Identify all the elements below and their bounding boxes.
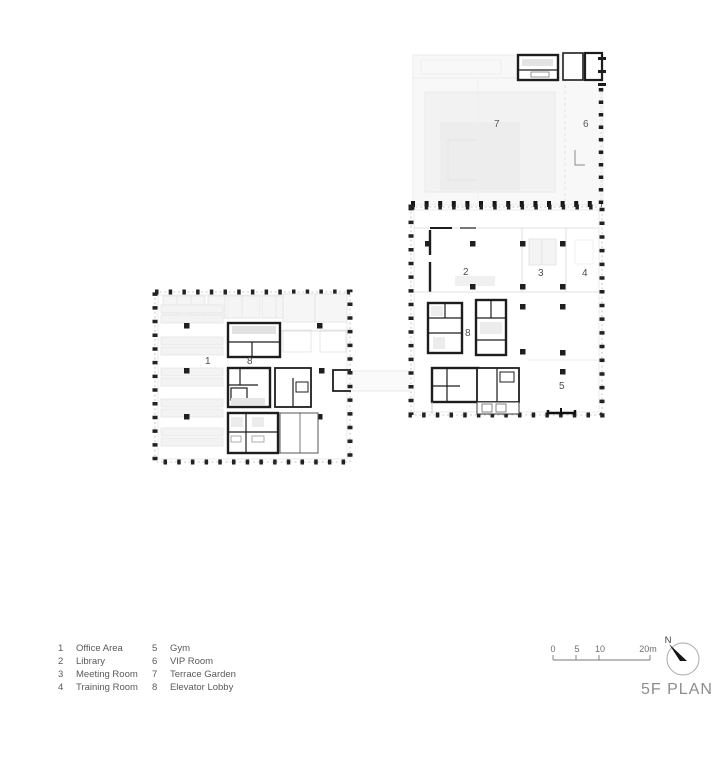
room-label-training-room: 4 — [582, 268, 588, 279]
legend-item-terrace-garden: 7Terrace Garden — [152, 668, 236, 681]
scale-tick-20m: 20m — [639, 644, 657, 654]
room-label-elevator-lobby-left: 8 — [247, 356, 253, 367]
scale-bar: 0 5 10 20m — [550, 644, 656, 660]
room-label-gym: 5 — [559, 381, 565, 392]
scale-tick-10: 10 — [595, 644, 605, 654]
page-title: 5F PLAN — [641, 681, 713, 698]
floor-plan-page: { "title": "5F PLAN", "north_label": "N"… — [0, 0, 719, 765]
north-label: N — [665, 635, 672, 646]
legend-item-training-room: 4Training Room — [58, 681, 138, 694]
legend-column-2: 5Gym 6VIP Room 7Terrace Garden 8Elevator… — [152, 642, 236, 694]
legend-column-1: 1Office Area 2Library 3Meeting Room 4Tra… — [58, 642, 138, 694]
legend: 1Office Area 2Library 3Meeting Room 4Tra… — [58, 642, 236, 694]
room-label-meeting-room: 3 — [538, 268, 544, 279]
scale-tick-0: 0 — [550, 644, 555, 654]
link-bridge — [351, 371, 410, 391]
scale-tick-5: 5 — [574, 644, 579, 654]
room-label-office-area: 1 — [205, 356, 211, 367]
right-wing: 2 3 4 8 5 — [411, 207, 602, 415]
right-wing-core-a — [428, 303, 462, 353]
legend-item-meeting-room: 3Meeting Room — [58, 668, 138, 681]
legend-item-vip-room: 6VIP Room — [152, 655, 236, 668]
left-wing-lower-core — [228, 413, 318, 453]
legend-item-office-area: 1Office Area — [58, 642, 138, 655]
legend-item-library: 2Library — [58, 655, 138, 668]
terrace-stair-core — [518, 55, 558, 80]
room-label-library: 2 — [463, 267, 469, 278]
room-label-terrace-garden: 7 — [494, 119, 500, 130]
right-wing-core-b — [476, 300, 506, 355]
legend-item-gym: 5Gym — [152, 642, 236, 655]
room-label-elevator-lobby-right: 8 — [465, 328, 471, 339]
room-label-vip-room: 6 — [583, 119, 589, 130]
terrace-ghost-wing: 7 6 — [411, 53, 606, 205]
north-arrow-icon: N — [665, 635, 699, 675]
legend-item-elevator-lobby: 8Elevator Lobby — [152, 681, 236, 694]
left-wing-upper-core — [228, 323, 280, 357]
left-wing: 1 8 — [155, 292, 351, 462]
